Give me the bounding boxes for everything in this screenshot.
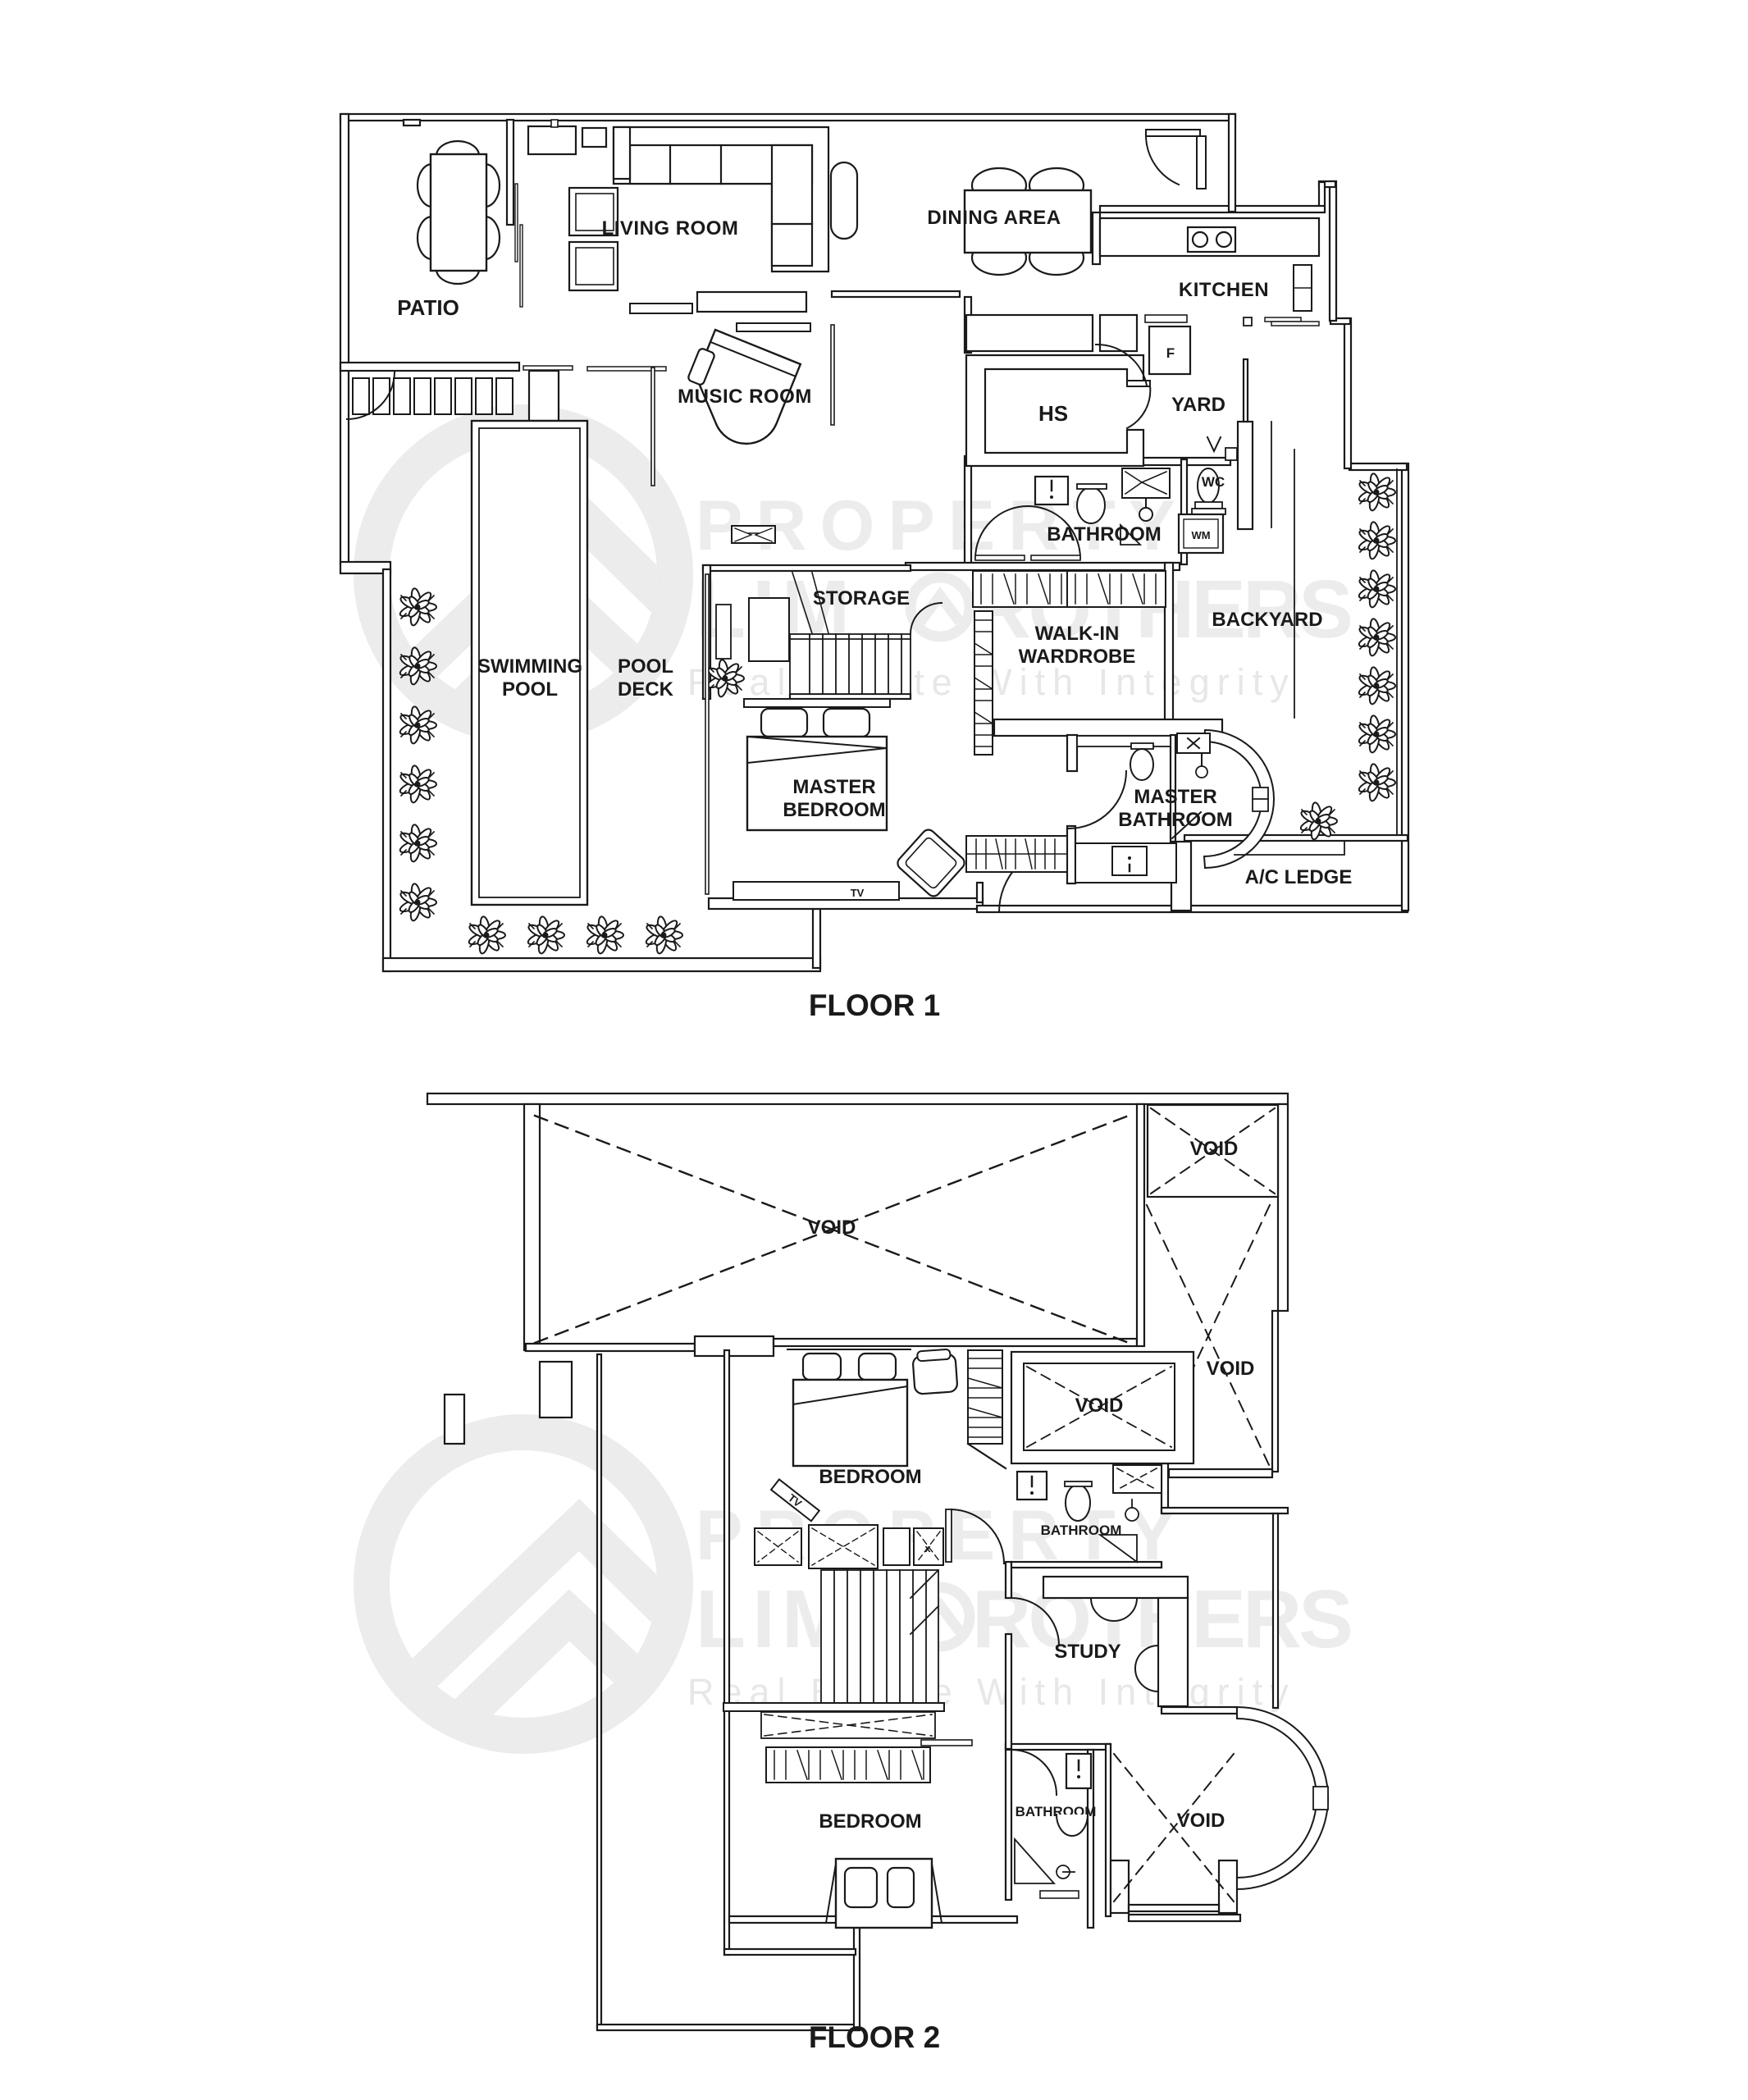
svg-text:WC: WC: [1202, 474, 1225, 490]
svg-text:DECK: DECK: [618, 678, 674, 701]
svg-text:BATHROOM: BATHROOM: [1047, 523, 1162, 546]
svg-text:YARD: YARD: [1171, 394, 1225, 416]
svg-text:VOID: VOID: [1207, 1358, 1255, 1380]
svg-text:STORAGE: STORAGE: [813, 587, 910, 609]
svg-text:PATIO: PATIO: [397, 295, 459, 320]
svg-text:FLOOR 2: FLOOR 2: [809, 2020, 940, 2054]
svg-text:BEDROOM: BEDROOM: [819, 1466, 921, 1488]
svg-text:MUSIC ROOM: MUSIC ROOM: [678, 386, 812, 408]
svg-text:VOID: VOID: [808, 1217, 856, 1239]
svg-text:KITCHEN: KITCHEN: [1179, 279, 1269, 301]
svg-text:BEDROOM: BEDROOM: [819, 1810, 921, 1833]
svg-text:STUDY: STUDY: [1054, 1641, 1120, 1663]
svg-text:VOID: VOID: [1075, 1395, 1124, 1417]
svg-text:DINING AREA: DINING AREA: [927, 207, 1061, 229]
svg-text:MASTER: MASTER: [792, 776, 875, 798]
svg-text:BACKYARD: BACKYARD: [1212, 609, 1322, 631]
svg-text:HS: HS: [1038, 401, 1068, 426]
svg-text:FLOOR 1: FLOOR 1: [809, 988, 940, 1022]
svg-text:LIVING ROOM: LIVING ROOM: [602, 217, 739, 240]
svg-text:BATHROOM: BATHROOM: [1118, 809, 1233, 831]
svg-text:F: F: [1166, 345, 1175, 361]
svg-text:TV: TV: [851, 887, 865, 899]
svg-text:POOL: POOL: [502, 678, 558, 701]
svg-text:WM: WM: [1191, 529, 1210, 541]
svg-text:MASTER: MASTER: [1134, 786, 1216, 808]
svg-text:A/C LEDGE: A/C LEDGE: [1245, 866, 1353, 888]
svg-text:WARDROBE: WARDROBE: [1019, 646, 1136, 668]
svg-text:x: x: [924, 1542, 931, 1554]
svg-text:POOL: POOL: [618, 655, 673, 678]
svg-text:WALK-IN: WALK-IN: [1035, 623, 1120, 645]
svg-text:BEDROOM: BEDROOM: [783, 799, 885, 821]
svg-text:SWIMMING: SWIMMING: [477, 655, 582, 678]
svg-text:VOID: VOID: [1177, 1810, 1225, 1832]
svg-text:VOID: VOID: [1190, 1138, 1239, 1160]
